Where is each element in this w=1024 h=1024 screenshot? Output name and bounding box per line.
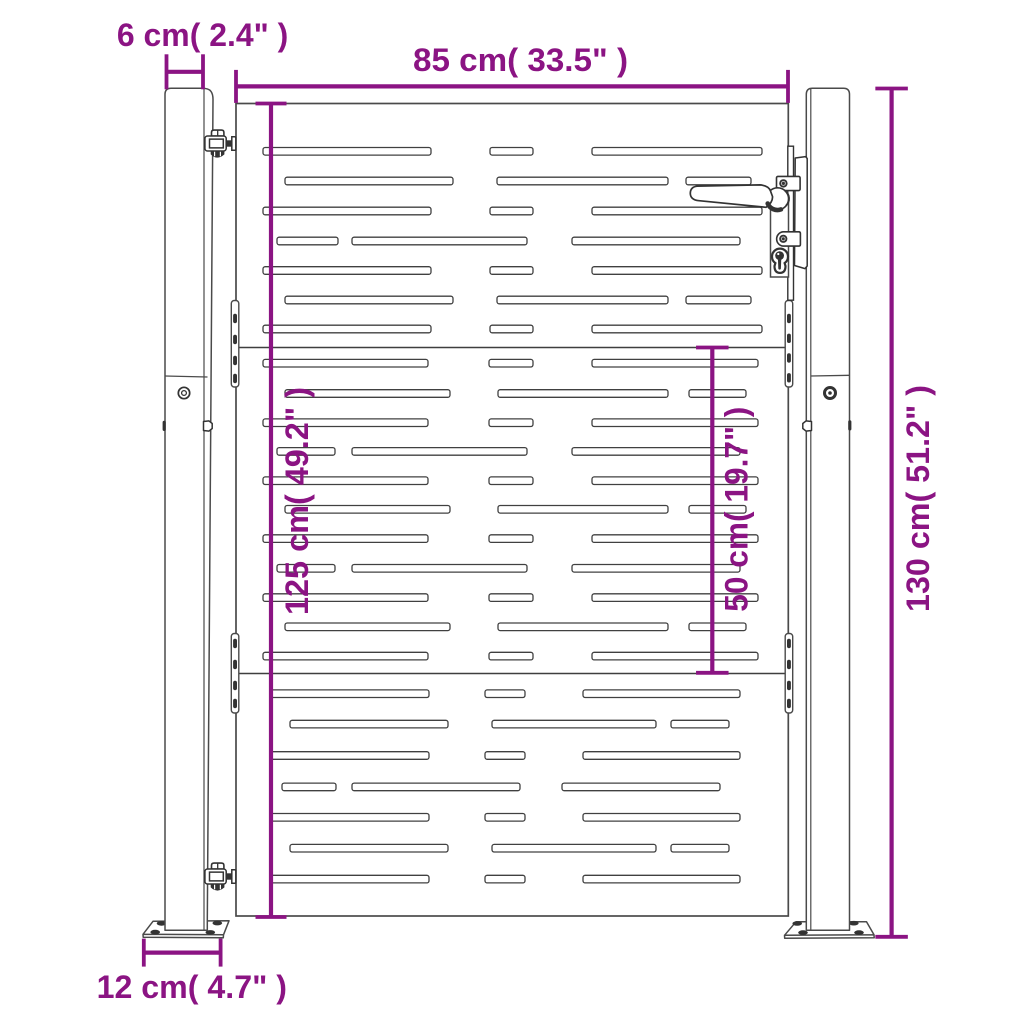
svg-text:130 cm( 51.2" ): 130 cm( 51.2" ) (900, 385, 936, 612)
svg-text:125 cm( 49.2" ): 125 cm( 49.2" ) (279, 387, 315, 615)
svg-text:12 cm( 4.7" ): 12 cm( 4.7" ) (97, 969, 287, 1005)
svg-text:6 cm( 2.4" ): 6 cm( 2.4" ) (117, 17, 288, 53)
svg-text:50 cm( 19.7" ): 50 cm( 19.7" ) (719, 407, 755, 612)
svg-text:85 cm( 33.5" ): 85 cm( 33.5" ) (413, 42, 628, 78)
